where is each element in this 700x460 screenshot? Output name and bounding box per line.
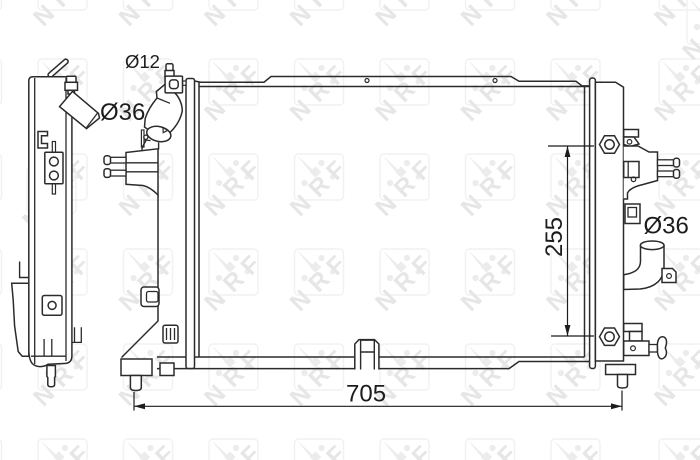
svg-text:705: 705	[346, 381, 386, 408]
svg-text:Ø36: Ø36	[644, 213, 689, 240]
svg-text:Ø36: Ø36	[100, 99, 145, 126]
svg-text:Ø12: Ø12	[125, 51, 160, 72]
svg-text:255: 255	[541, 217, 568, 257]
